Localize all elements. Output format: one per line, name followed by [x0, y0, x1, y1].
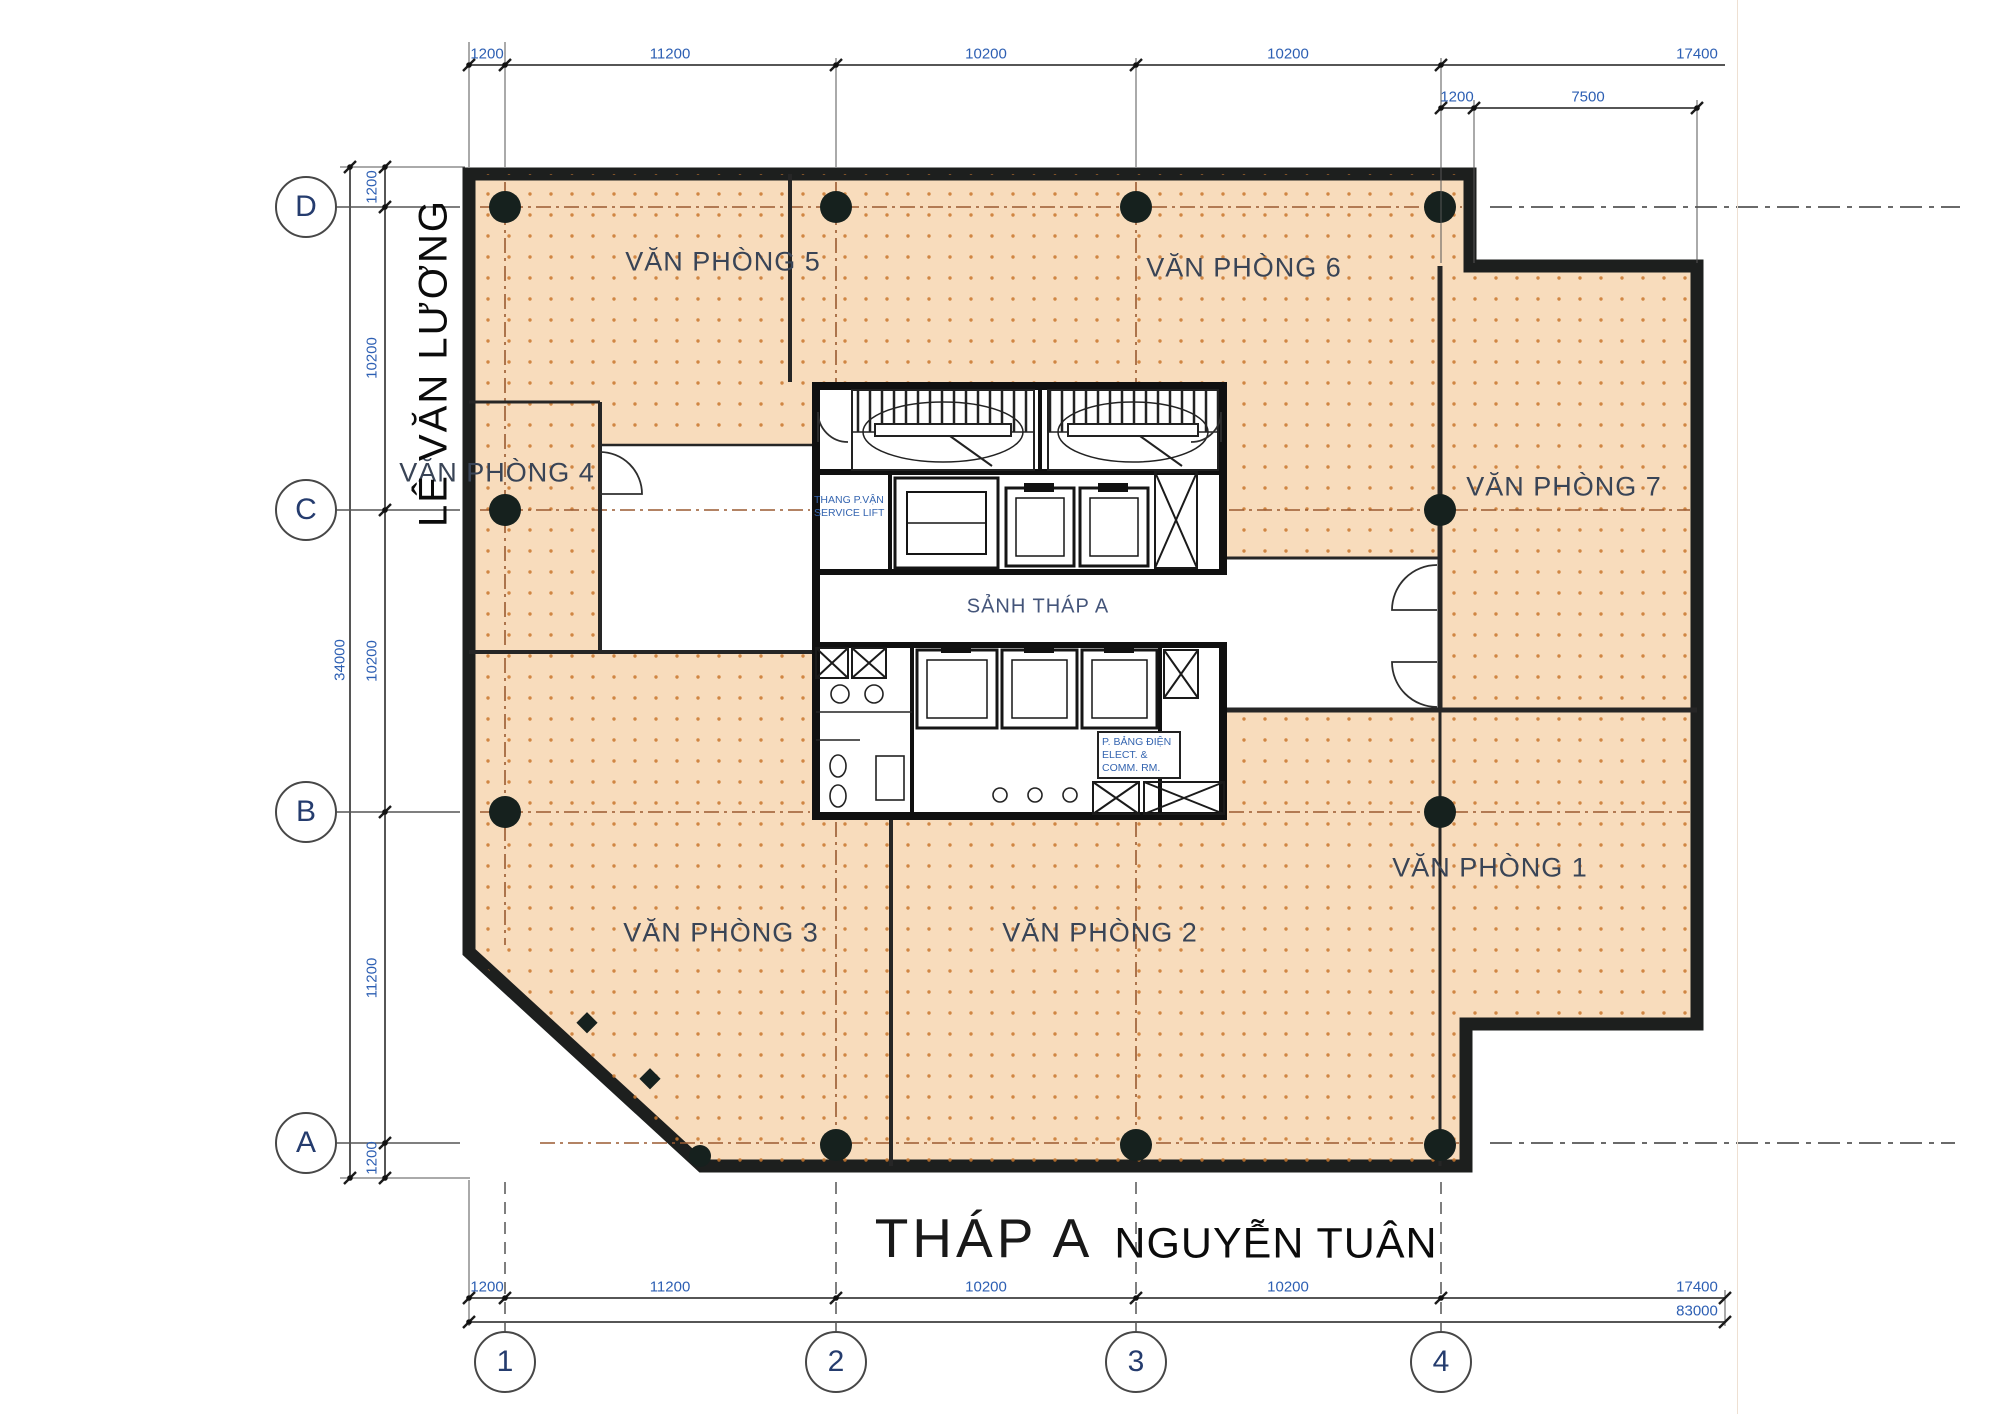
service-lift-label: THANG P.VẬN SERVICE LIFT [814, 494, 894, 520]
dim-left-total-34000: 34000 [332, 639, 349, 681]
dim-bottom-1200: 1200 [470, 1279, 503, 1296]
grid-bubble-row-a-text: A [296, 1126, 316, 1160]
elect-room-label-line3: COMM. RM. [1102, 762, 1182, 775]
page-fold-line [1737, 0, 1738, 1414]
grid-bubble-col-4-text: 4 [1433, 1345, 1450, 1379]
dim-bottom-17400: 17400 [1676, 1279, 1718, 1296]
drawing-title: THÁP A [875, 1206, 1094, 1270]
street-label-le-van-luong: LÊ VĂN LƯƠNG [412, 199, 457, 527]
dim-top-1200: 1200 [470, 46, 503, 63]
dim-left-10200b: 10200 [364, 640, 381, 682]
grid-bubble-col-3-text: 3 [1128, 1345, 1145, 1379]
street-label-nguyen-tuan: NGUYỄN TUÂN [1114, 1220, 1437, 1269]
grid-bubble-col-1-text: 1 [497, 1345, 514, 1379]
elect-room-label-line2: ELECT. & [1102, 749, 1182, 762]
dim-bottom-total-83000: 83000 [1676, 1303, 1718, 1320]
dim-top-10200b: 10200 [1267, 46, 1309, 63]
grid-bubble-row-b: B [275, 781, 337, 843]
grid-bubble-row-a: A [275, 1112, 337, 1174]
grid-bubble-row-d-text: D [295, 190, 317, 224]
grid-bubble-col-2-text: 2 [828, 1345, 845, 1379]
grid-bubble-row-c: C [275, 479, 337, 541]
service-lift-label-line1: THANG P.VẬN [814, 494, 894, 507]
dim-left-1200a: 1200 [364, 170, 381, 203]
room-label-van-phong-2: VĂN PHÒNG 2 [1002, 918, 1198, 949]
elect-room-label-line1: P. BẢNG ĐIỆN [1102, 736, 1182, 749]
room-label-van-phong-3: VĂN PHÒNG 3 [623, 918, 819, 949]
floor-plan-page: { "title": "THÁP A", "streets": { "left"… [0, 0, 2000, 1414]
grid-bubble-col-1: 1 [474, 1331, 536, 1393]
elect-room-label: P. BẢNG ĐIỆN ELECT. & COMM. RM. [1102, 736, 1182, 775]
room-label-van-phong-1: VĂN PHÒNG 1 [1392, 853, 1588, 884]
lobby-label: SẢNH THÁP A [967, 596, 1110, 619]
dim-top-11200: 11200 [650, 46, 691, 63]
dim-top-inset-1200: 1200 [1440, 89, 1473, 106]
dim-top-inset-7500: 7500 [1571, 89, 1604, 106]
dim-bottom-11200: 11200 [650, 1279, 691, 1296]
room-label-van-phong-6: VĂN PHÒNG 6 [1146, 253, 1342, 284]
grid-bubble-row-d: D [275, 176, 337, 238]
dim-left-10200a: 10200 [364, 337, 381, 379]
grid-bubble-col-2: 2 [805, 1331, 867, 1393]
service-lift-label-line2: SERVICE LIFT [814, 507, 894, 520]
dim-left-1200b: 1200 [364, 1141, 381, 1174]
room-label-van-phong-7: VĂN PHÒNG 7 [1466, 472, 1662, 503]
dim-top-17400: 17400 [1676, 46, 1718, 63]
room-label-van-phong-5: VĂN PHÒNG 5 [625, 247, 821, 278]
grid-bubble-row-b-text: B [296, 795, 316, 829]
grid-bubble-col-4: 4 [1410, 1331, 1472, 1393]
service-lift [895, 478, 998, 568]
dim-left-11200: 11200 [364, 958, 381, 999]
dim-bottom-10200b: 10200 [1267, 1279, 1309, 1296]
grid-bubble-row-c-text: C [295, 493, 317, 527]
dim-top-10200a: 10200 [965, 46, 1007, 63]
grid-bubble-col-3: 3 [1105, 1331, 1167, 1393]
dim-bottom-10200a: 10200 [965, 1279, 1007, 1296]
